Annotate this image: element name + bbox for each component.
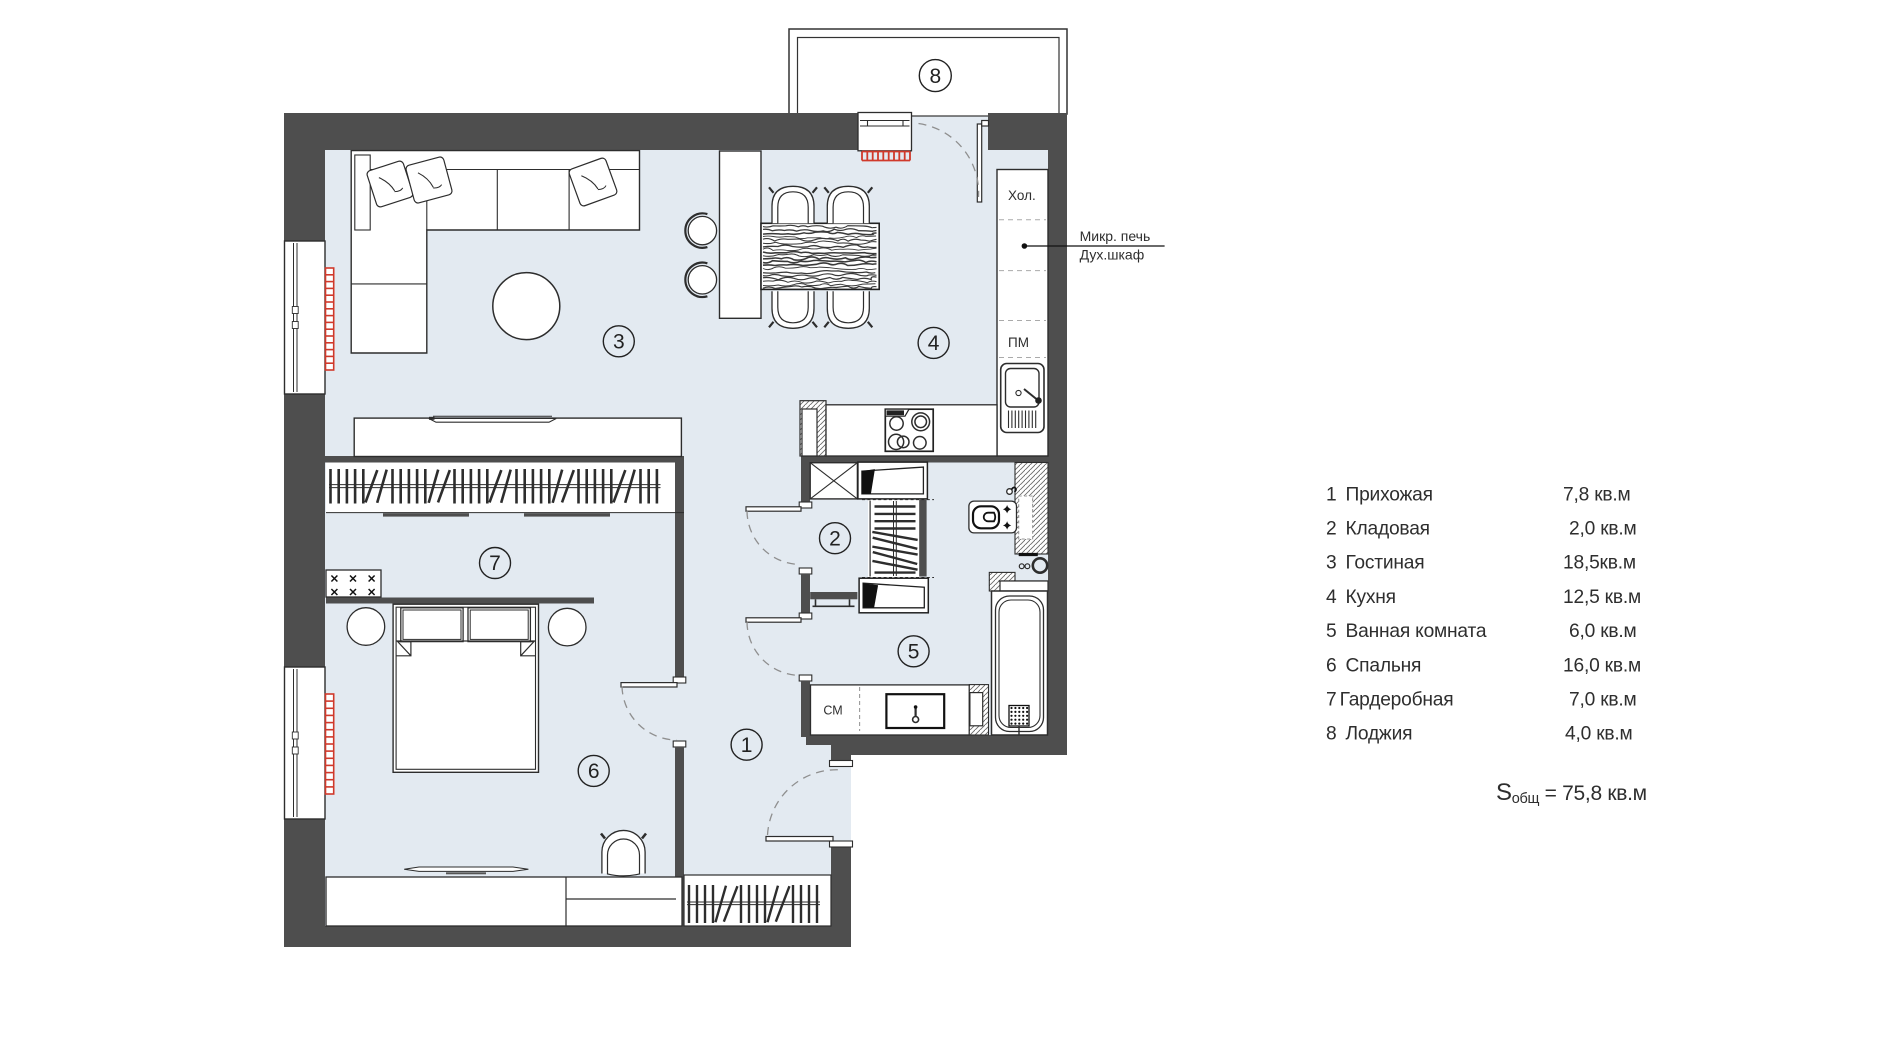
svg-text:1: 1 <box>741 734 753 757</box>
svg-text:Спальня: Спальня <box>1346 655 1422 676</box>
svg-text:6: 6 <box>588 760 600 783</box>
svg-text:4,0 кв.м: 4,0 кв.м <box>1565 724 1633 745</box>
svg-text:4: 4 <box>1326 587 1337 608</box>
svg-text:7: 7 <box>1326 690 1336 711</box>
svg-text:Гардеробная: Гардеробная <box>1340 690 1454 711</box>
svg-text:Лоджия: Лоджия <box>1346 724 1413 745</box>
svg-text:Прихожая: Прихожая <box>1346 484 1433 505</box>
svg-text:8: 8 <box>929 65 941 88</box>
svg-text:ПМ: ПМ <box>1008 335 1029 350</box>
svg-text:Гостиная: Гостиная <box>1346 553 1425 574</box>
svg-text:СМ: СМ <box>823 704 842 718</box>
svg-text:3: 3 <box>613 331 625 354</box>
svg-text:5: 5 <box>1326 621 1336 642</box>
svg-text:Ванная комната: Ванная комната <box>1346 621 1487 642</box>
svg-text:2,0 кв.м: 2,0 кв.м <box>1569 519 1637 540</box>
svg-text:7,8 кв.м: 7,8 кв.м <box>1563 484 1631 505</box>
svg-text:12,5 кв.м: 12,5 кв.м <box>1563 587 1641 608</box>
svg-text:Микр. печь: Микр. печь <box>1080 228 1151 244</box>
svg-text:Хол.: Хол. <box>1008 188 1036 203</box>
svg-text:Кухня: Кухня <box>1346 587 1396 608</box>
svg-text:Кладовая: Кладовая <box>1346 519 1430 540</box>
svg-text:5: 5 <box>908 641 920 664</box>
svg-text:2: 2 <box>1326 519 1336 540</box>
svg-text:8: 8 <box>1326 724 1336 745</box>
svg-text:16,0 кв.м: 16,0 кв.м <box>1563 655 1641 676</box>
svg-text:4: 4 <box>928 332 940 355</box>
svg-text:3: 3 <box>1326 553 1336 574</box>
svg-text:1: 1 <box>1326 484 1336 505</box>
svg-text:7: 7 <box>489 552 501 575</box>
svg-text:6,0 кв.м: 6,0 кв.м <box>1569 621 1637 642</box>
svg-text:7,0 кв.м: 7,0 кв.м <box>1569 690 1637 711</box>
svg-text:2: 2 <box>829 527 841 550</box>
svg-text:6: 6 <box>1326 655 1336 676</box>
svg-text:18,5кв.м: 18,5кв.м <box>1563 553 1636 574</box>
svg-text:Дух.шкаф: Дух.шкаф <box>1080 247 1145 263</box>
